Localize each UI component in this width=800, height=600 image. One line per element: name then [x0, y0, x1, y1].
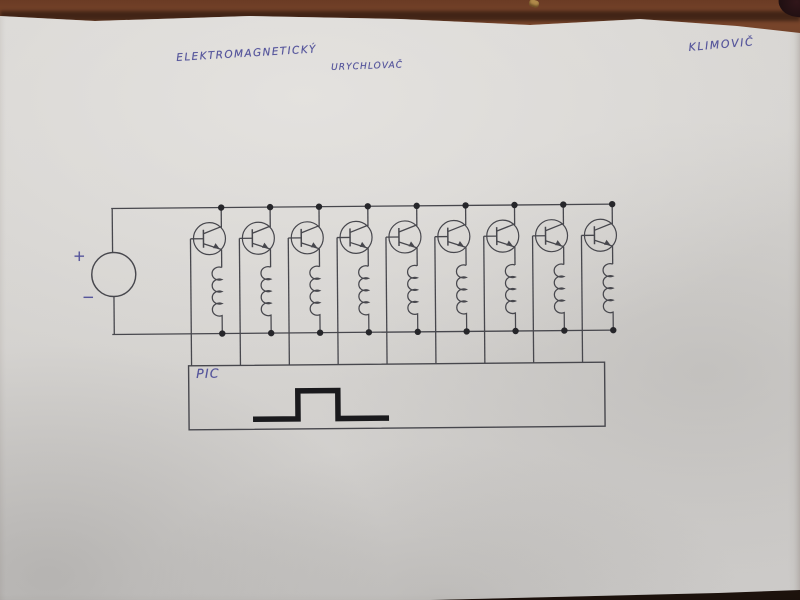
transistor-emitter	[448, 241, 466, 247]
junction-dot	[561, 327, 567, 333]
junction-dot	[366, 329, 372, 335]
junction-dot	[463, 328, 469, 334]
source-minus-label: −	[82, 288, 95, 306]
junction-dot	[365, 203, 371, 209]
emitter-arrow-icon	[506, 241, 513, 247]
pulse-waveform	[253, 390, 389, 419]
source-plus-label: +	[73, 247, 86, 265]
junction-dot	[219, 330, 225, 336]
transistor-collector	[545, 224, 563, 231]
junction-dot	[512, 328, 518, 334]
coil-icon	[554, 264, 564, 331]
photo-scene: ELEKTROMAGNETICKÝ URYCHLOVAČ KLIMOVIČ PI…	[0, 0, 800, 600]
junction-dot	[560, 201, 566, 207]
transistor-collector	[448, 224, 466, 231]
coil-icon	[408, 265, 418, 332]
junction-dot	[610, 327, 616, 333]
emitter-arrow-icon	[555, 240, 562, 246]
coil-icon	[359, 266, 369, 333]
bottom-supply-rail	[112, 330, 613, 334]
base-control-wire	[288, 238, 289, 365]
junction-dot	[268, 330, 274, 336]
transistor-collector	[203, 227, 221, 234]
junction-dot	[413, 203, 419, 209]
coil-icon	[456, 265, 466, 332]
base-control-wire	[533, 236, 534, 363]
transistor-emitter	[350, 242, 368, 248]
transistor-collector	[399, 225, 417, 232]
transistor-collector	[497, 224, 515, 231]
pic-box-label: PIC	[196, 366, 220, 381]
pic-controller-box	[189, 362, 606, 430]
dc-source-symbol	[92, 252, 136, 296]
base-control-wire	[337, 238, 338, 365]
coil-icon	[212, 267, 222, 334]
emitter-arrow-icon	[213, 243, 220, 249]
emitter-arrow-icon	[360, 242, 367, 248]
emitter-arrow-icon	[311, 242, 318, 248]
junction-dot	[415, 329, 421, 335]
transistor-collector	[301, 226, 319, 233]
circuit-schematic	[0, 0, 800, 600]
transistor-emitter	[204, 244, 222, 250]
junction-dot	[511, 202, 517, 208]
junction-dot	[462, 202, 468, 208]
base-control-wire	[484, 236, 485, 363]
junction-dot	[316, 203, 322, 209]
junction-dot	[317, 329, 323, 335]
transistor-collector	[594, 223, 612, 230]
transistor-emitter	[399, 242, 417, 248]
coil-icon	[310, 266, 320, 333]
transistor-emitter	[301, 243, 319, 249]
transistor-emitter	[594, 240, 612, 246]
coil-icon	[261, 267, 271, 334]
transistor-emitter	[497, 241, 515, 247]
coil-icon	[505, 264, 515, 331]
base-control-wire	[239, 238, 240, 365]
base-control-wire	[386, 237, 387, 364]
emitter-arrow-icon	[262, 243, 269, 249]
junction-dot	[609, 201, 615, 207]
base-control-wire	[581, 235, 582, 362]
transistor-collector	[252, 226, 270, 233]
transistor-collector	[350, 225, 368, 232]
base-control-wire	[435, 237, 436, 364]
junction-dot	[218, 204, 224, 210]
base-control-wire	[190, 239, 191, 366]
emitter-arrow-icon	[604, 240, 611, 246]
transistor-emitter	[252, 243, 270, 249]
transistor-emitter	[546, 241, 564, 247]
junction-dot	[267, 204, 273, 210]
emitter-arrow-icon	[457, 241, 464, 247]
top-supply-rail	[111, 204, 612, 208]
coil-icon	[603, 264, 613, 331]
emitter-arrow-icon	[408, 241, 415, 247]
